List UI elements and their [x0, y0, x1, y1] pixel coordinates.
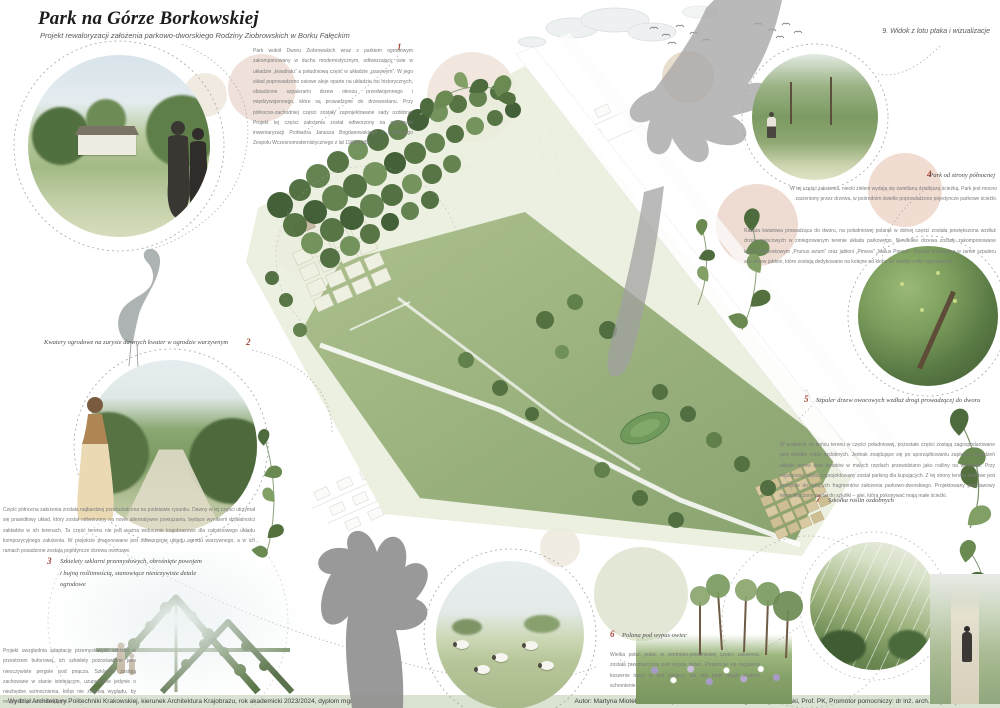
plant-blob — [818, 630, 866, 664]
cloud-sketch — [518, 6, 718, 47]
tree-trunk — [790, 82, 792, 124]
marker-6: 6 — [610, 629, 615, 639]
marker-3: 3 — [47, 556, 52, 566]
paragraph-greenhouses: Projekt uwzględnia adaptację przemysłowy… — [3, 646, 136, 708]
fruit-dot — [920, 308, 924, 312]
tree-trunk — [917, 291, 956, 370]
page-title: Park na Górze Borkowskiej — [38, 8, 259, 30]
fruit-dot — [953, 299, 957, 303]
page-subtitle: Projekt rewaloryzacji założenia parkowo-… — [40, 31, 350, 40]
sheep-icon — [476, 665, 490, 674]
caption-park-north: Park od strony północnej — [860, 170, 995, 182]
paragraph-north-view: W tej części założenia, niecki zieleni w… — [772, 184, 997, 205]
manor-house — [78, 135, 136, 155]
fruit-dot — [936, 271, 940, 275]
poster: Park na Górze Borkowskiej Projekt rewalo… — [0, 0, 1000, 708]
pond — [616, 406, 674, 451]
sheep-meadow-visualization — [436, 561, 584, 708]
distant-trees — [524, 615, 560, 633]
ivy-sprig-right — [728, 206, 773, 331]
marker-5: 5 — [804, 394, 809, 404]
ivy-sprig-top — [416, 71, 518, 120]
distant-trees — [452, 619, 482, 635]
historic-couple-photo — [160, 113, 210, 225]
forest-view-visualization — [752, 54, 878, 180]
greenhouse-interior-visualization — [810, 542, 938, 670]
ivy-sprig-mid — [693, 217, 717, 305]
paragraph-flower-border: Rabata kwiatowa prowadząca do dworu, na … — [744, 226, 996, 267]
reaching-hand-top-image — [607, 0, 782, 377]
walking-woman-visualization — [930, 574, 1000, 704]
paragraph-nursery: W projekcie na końcu terenu w części poł… — [780, 440, 995, 502]
fruit-dot — [900, 282, 904, 286]
standing-person-figure — [767, 112, 776, 138]
sheep-icon — [455, 640, 469, 649]
tree-trunk — [830, 77, 832, 125]
reaching-hand-bottom-image — [318, 531, 428, 708]
caption-garden-quarters: Kwatery ogrodowe na zarysie dawnych kwat… — [44, 337, 244, 349]
urban-fabric — [306, 94, 832, 540]
walking-figure — [962, 626, 972, 662]
heron-image — [118, 249, 160, 368]
marker-2: 2 — [246, 337, 251, 347]
orchard-tree-visualization — [858, 246, 998, 386]
sheep-icon — [524, 641, 538, 650]
paragraph-sheep: Wielka połać polan w centralno-południow… — [610, 650, 760, 691]
bird-silhouettes — [650, 23, 802, 44]
caption-fruit-tree-row: Szpaler drzew owocowych wzdłuż drogi pro… — [816, 395, 998, 407]
manor-visualization — [28, 55, 210, 237]
sheep-icon — [494, 653, 508, 662]
caption-sheep-meadow: Polana pod wypas owiec — [622, 630, 742, 642]
caption-greenhouse-skeletons: Szkielety szklarni przemysłowych, obrośn… — [60, 556, 205, 591]
formal-garden-quarters — [282, 197, 392, 312]
sheep-icon — [540, 661, 554, 670]
sheet-number-label: 9. Widok z lotu ptaka i wizualizacje — [882, 28, 990, 35]
plant-blob — [888, 630, 928, 660]
tree-canopies — [265, 84, 776, 528]
paragraph-north-part: Część północna założenia została najbard… — [3, 505, 255, 556]
intro-paragraph: Park wokół Dworu Ziobrowskich wraz z par… — [253, 46, 413, 149]
